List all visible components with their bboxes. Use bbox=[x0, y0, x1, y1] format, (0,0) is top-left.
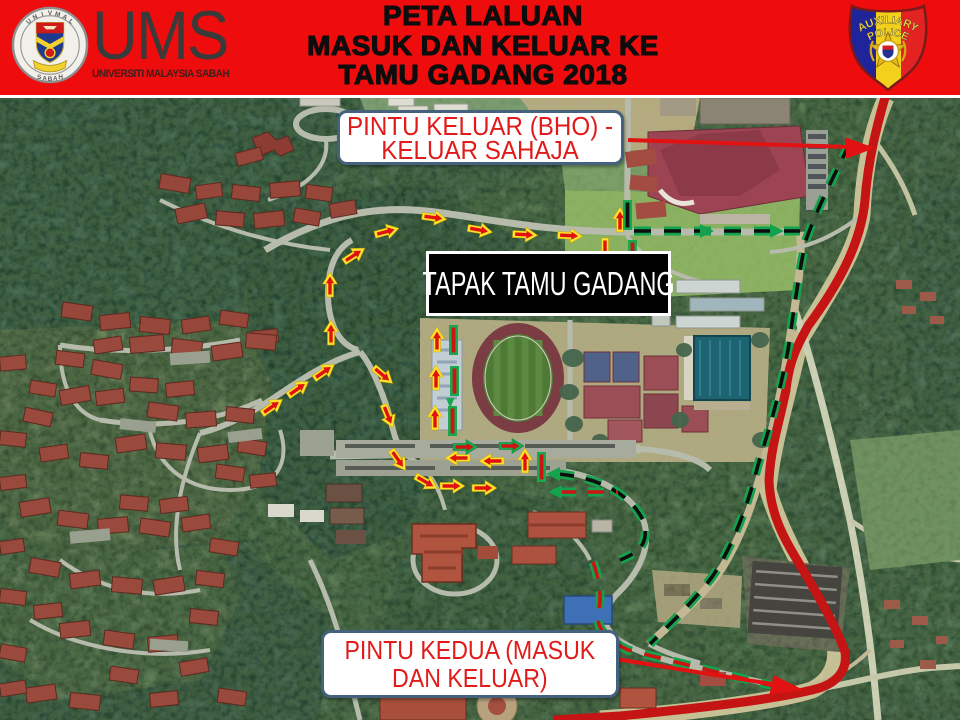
svg-text:A: A bbox=[53, 76, 58, 83]
svg-text:S: S bbox=[37, 74, 41, 81]
svg-text:H: H bbox=[58, 74, 63, 81]
svg-text:A: A bbox=[42, 76, 47, 83]
svg-text:B: B bbox=[48, 76, 53, 83]
